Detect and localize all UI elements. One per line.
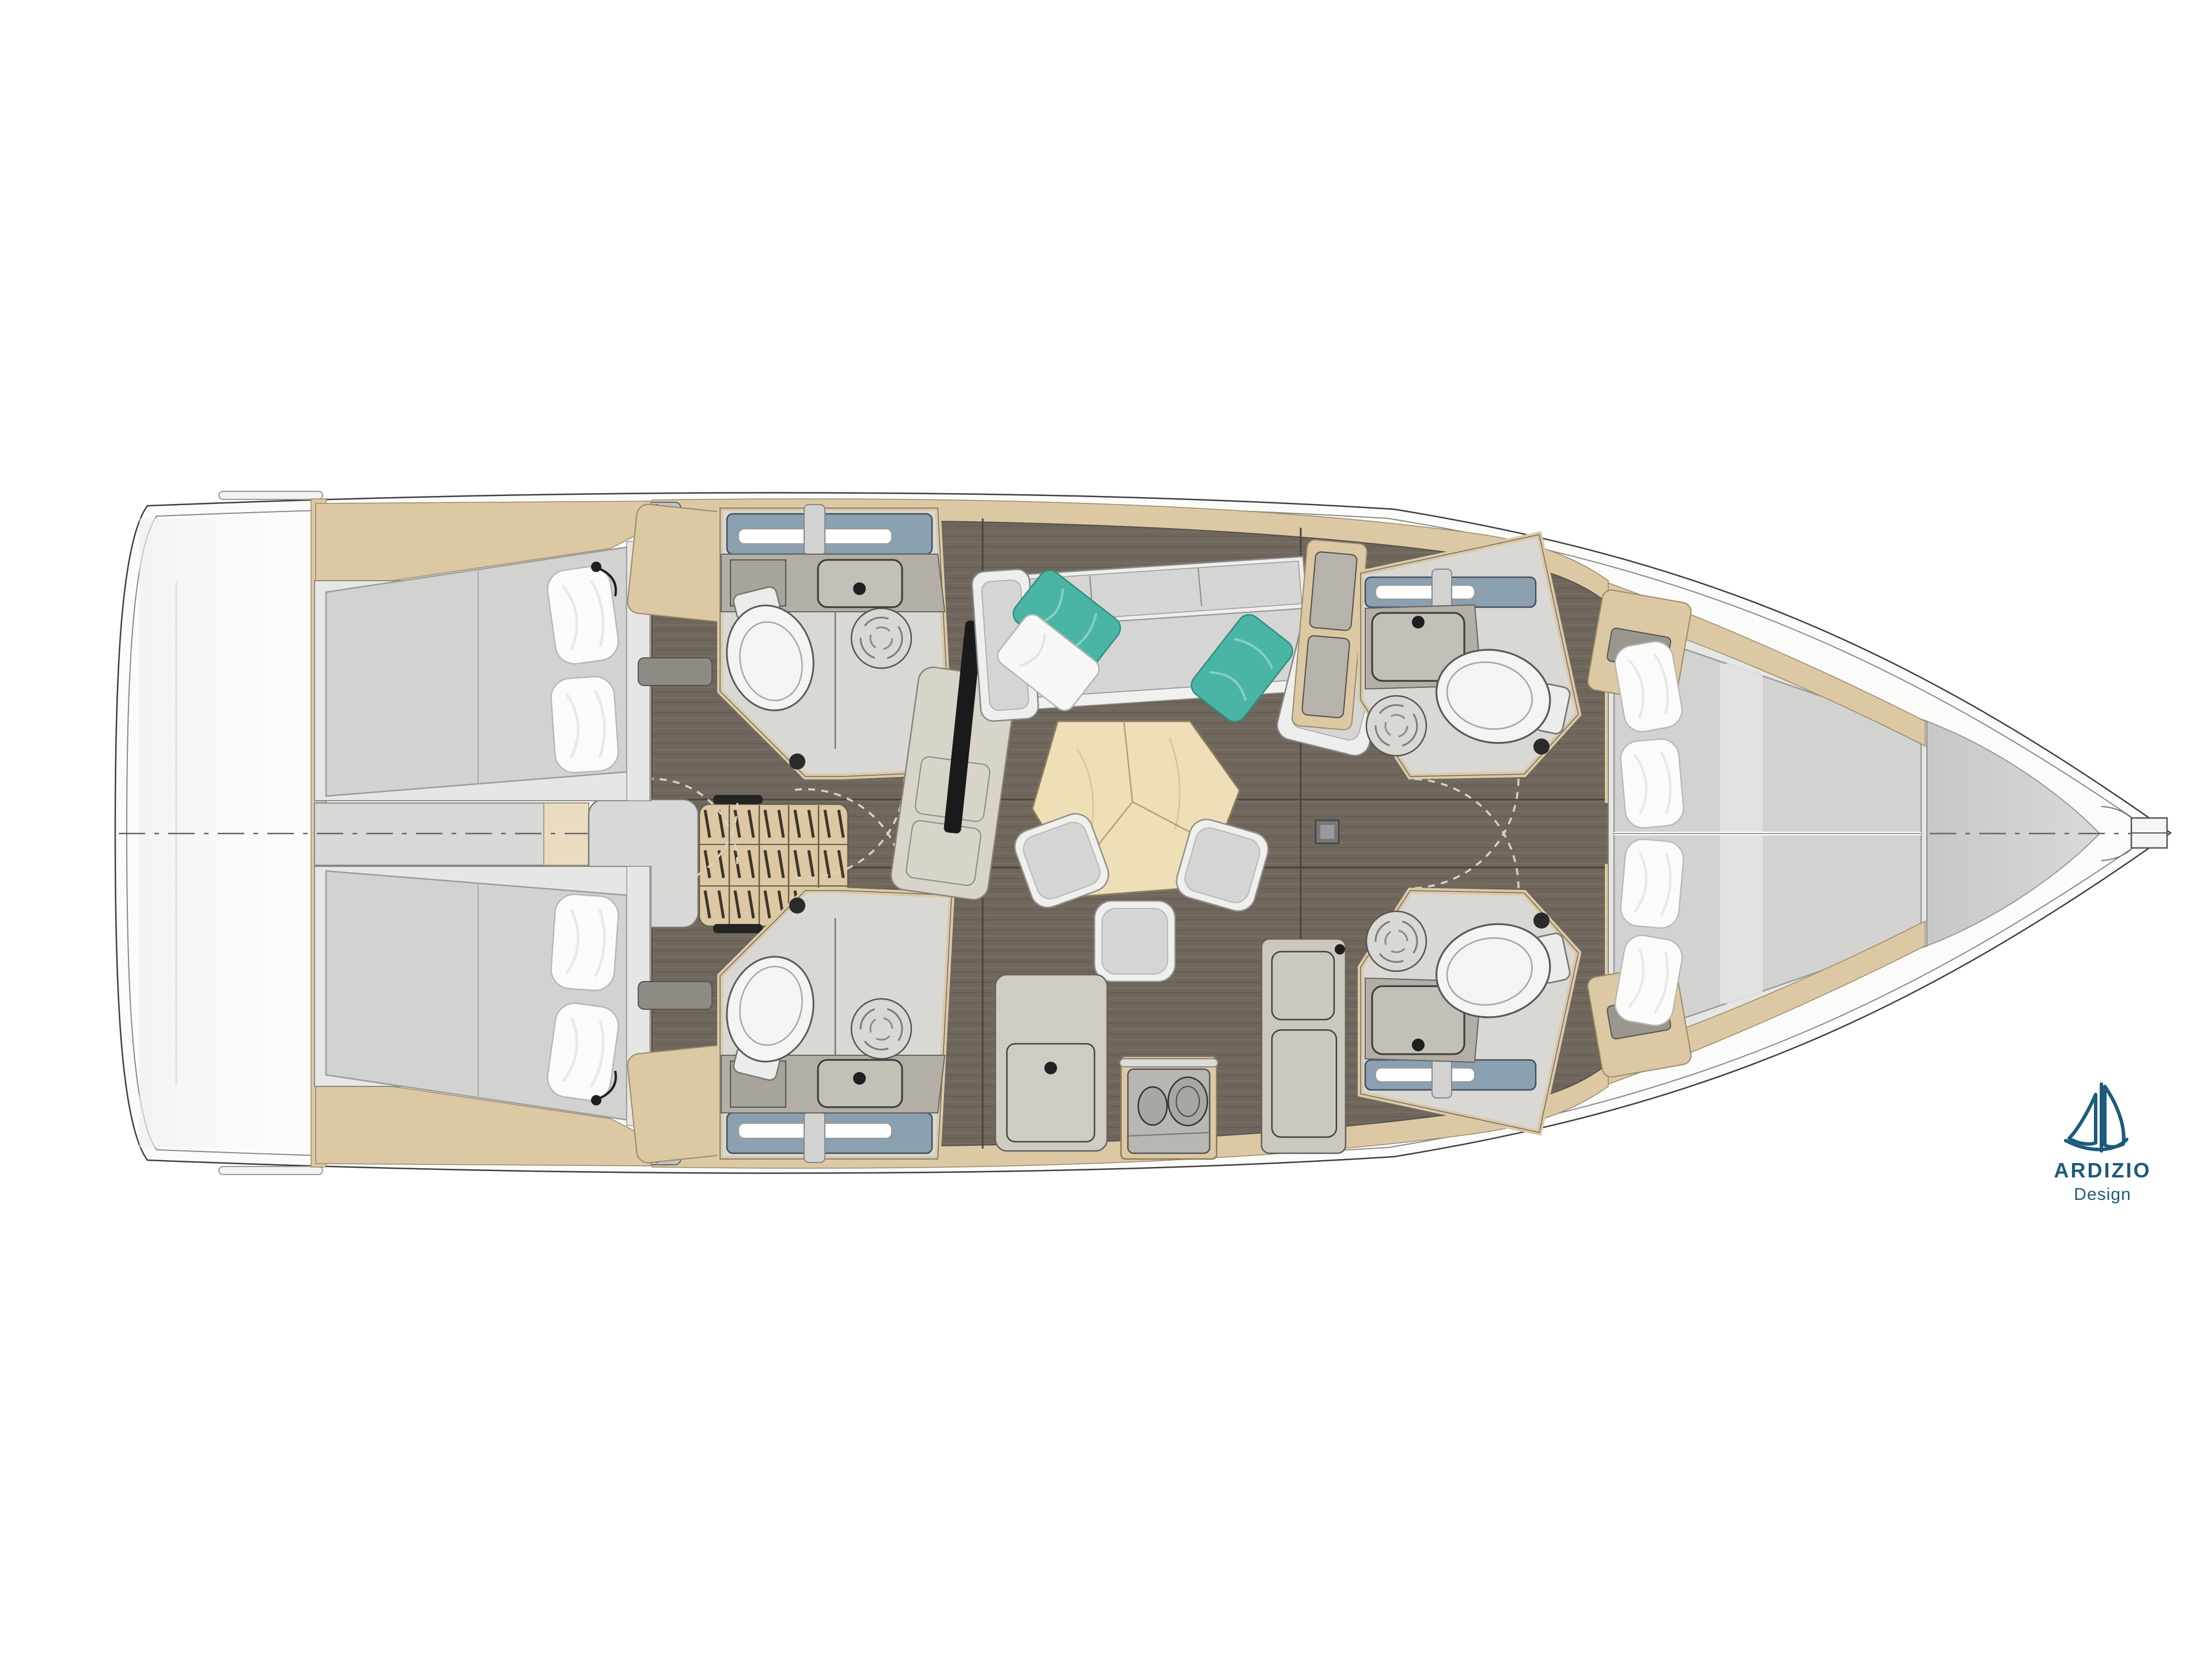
faucet <box>1412 616 1425 628</box>
mast-post-inner <box>1320 825 1334 839</box>
yacht-floorplan <box>0 0 2212 1659</box>
galley-side-counter <box>1262 939 1346 1153</box>
vanity-tray <box>638 658 712 685</box>
hatch-bracket <box>804 505 825 555</box>
stove-handrail <box>1120 1059 1218 1067</box>
step-hinge <box>713 924 763 933</box>
hatch-knob <box>1044 1062 1057 1074</box>
galley-faucet <box>1335 944 1345 955</box>
main-sail <box>2105 1086 2124 1147</box>
reading-light <box>591 562 601 572</box>
jib-sail <box>2069 1094 2096 1144</box>
logo-sailboat-icon <box>2066 1084 2127 1151</box>
shower-mixer <box>1533 738 1550 755</box>
faucet <box>853 582 866 595</box>
traveller-track <box>219 1166 323 1175</box>
led-light-bar <box>1376 585 1475 599</box>
burner-large <box>1168 1077 1207 1126</box>
traveller-track <box>219 491 323 499</box>
burner-small <box>1138 1087 1167 1125</box>
stove <box>1120 1056 1218 1159</box>
shower-mixer <box>789 753 805 770</box>
step-hinge <box>713 795 763 804</box>
